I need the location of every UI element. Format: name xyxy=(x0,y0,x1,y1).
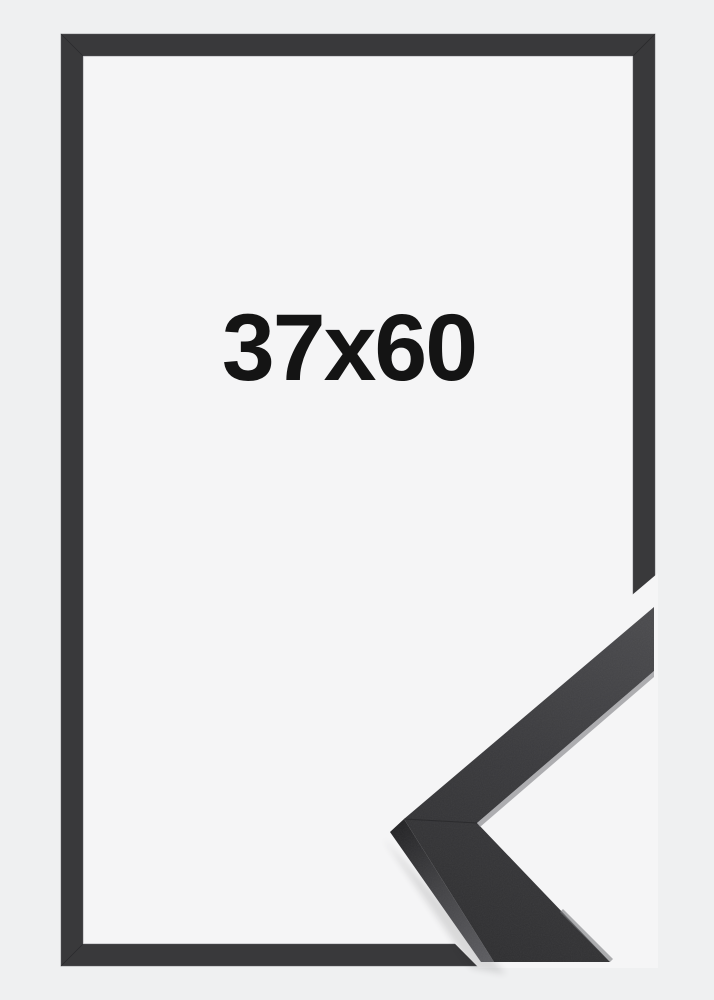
product-image: 37x60 xyxy=(0,0,714,1000)
frame-illustration xyxy=(0,0,714,1000)
size-label: 37x60 xyxy=(0,300,698,396)
